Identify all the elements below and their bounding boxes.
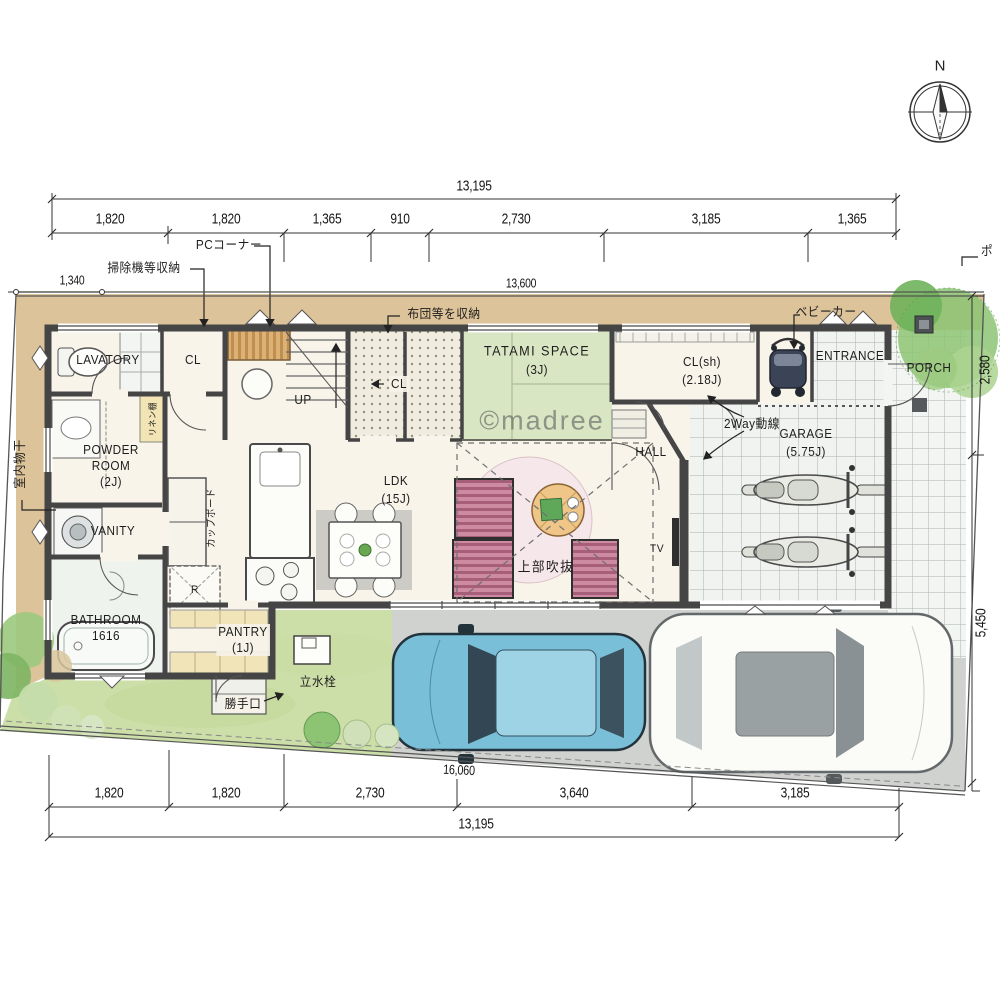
- room-label-hall: HALL: [635, 444, 666, 460]
- step-bench: [612, 410, 646, 438]
- room-label-garage: GARAGE: [779, 426, 832, 442]
- room-label-bathroom: BATHROOM 1616: [71, 612, 142, 644]
- room-label-vanity: VANITY: [91, 523, 135, 539]
- dim-right-upper: 2,580: [977, 356, 994, 385]
- dim-bottom-diagonal: 16,060: [443, 762, 475, 778]
- dim-bottom-seg: 3,640: [560, 785, 589, 802]
- callout-tap: 立水栓: [300, 674, 337, 690]
- compass-north-label: N: [935, 58, 946, 75]
- table-plant: [359, 544, 371, 556]
- floor-plan-canvas: N ©madree LAVATORY CL UP CL TATAMI SPACE…: [0, 0, 1000, 1000]
- tv-icon: [672, 518, 679, 566]
- blue-car-icon: [393, 624, 645, 764]
- sofa: [453, 540, 513, 598]
- white-car-icon: [650, 602, 952, 784]
- dim-right-lower: 5,450: [973, 609, 990, 638]
- room-label-ldk: LDK: [384, 473, 408, 489]
- room-label-entrance: ENTRANCE: [816, 348, 884, 364]
- callout-futon-storage: 布団等を収納: [407, 306, 480, 322]
- callout-back-door: 勝手口: [223, 696, 263, 712]
- stool-icon: [242, 369, 272, 399]
- room-size-garage: (5.75J): [786, 444, 826, 460]
- watermark: ©madree: [479, 406, 604, 437]
- room-label-lavatory: LAVATORY: [76, 352, 139, 368]
- dim-left-offset: 1,340: [60, 273, 85, 288]
- callout-two-way: 2Way動線: [724, 416, 780, 432]
- callout-vacuum-storage: 掃除機等収納: [107, 260, 180, 276]
- callout-pc-corner: PCコーナー: [196, 237, 262, 253]
- dim-top-seg: 1,365: [838, 211, 867, 228]
- room-label-pantry: PANTRY (1J): [216, 624, 269, 656]
- dim-bottom-seg: 1,820: [212, 785, 241, 802]
- entrance-tiles: [812, 328, 888, 404]
- fridge-label: R: [191, 583, 199, 597]
- room-label-tatami: TATAMI SPACE: [484, 342, 590, 359]
- kitchen-sink: [260, 452, 300, 486]
- stairs-up-label: UP: [294, 392, 311, 408]
- room-size-shoe-closet: (2.18J): [682, 372, 722, 388]
- compass-icon: [908, 82, 972, 142]
- dim-top-seg: 2,730: [502, 211, 531, 228]
- cooktop-counter: [246, 558, 314, 605]
- dim-top-seg: 1,365: [313, 211, 342, 228]
- callout-post: ポ: [981, 243, 993, 259]
- sofa-ottoman: [572, 540, 618, 598]
- callout-void-above: 上部吹抜: [518, 558, 574, 575]
- dim-bottom-total: 13,195: [458, 816, 493, 833]
- dim-bottom-seg: 1,820: [95, 785, 124, 802]
- dim-bottom-seg: 3,185: [781, 785, 810, 802]
- dim-top-total: 13,195: [456, 178, 491, 195]
- dim-top-seg: 1,820: [212, 211, 241, 228]
- tv-label: TV: [650, 542, 664, 556]
- callout-linen-shelf: リネン棚: [148, 402, 159, 436]
- dim-top-seg: 3,185: [692, 211, 721, 228]
- callout-cupboard: カップボード: [207, 488, 220, 548]
- room-label-shoe-closet: CL(sh): [683, 354, 721, 370]
- sofa: [455, 479, 513, 538]
- room-label-futon-closet: CL: [389, 376, 409, 392]
- callout-indoor-laundry: 室内物干: [12, 439, 28, 488]
- room-size-ldk: (15J): [381, 491, 410, 507]
- dim-bottom-seg: 2,730: [356, 785, 385, 802]
- dim-top-seg: 910: [390, 211, 409, 228]
- powder-basin: [61, 417, 91, 439]
- pc-desk: [228, 330, 290, 360]
- room-label-powder-room: POWDER ROOM (2J): [83, 442, 139, 490]
- callout-stroller: ベビーカー: [795, 304, 856, 320]
- room-label-closet: CL: [185, 352, 201, 368]
- room-label-porch: PORCH: [907, 360, 952, 376]
- dim-site-width: 13,600: [506, 276, 536, 291]
- water-tap: [294, 636, 330, 664]
- room-size-tatami: (3J): [526, 362, 548, 378]
- dim-top-seg: 1,820: [96, 211, 125, 228]
- floor-plan-graphics: [0, 0, 1000, 1000]
- floor-cushion: [540, 498, 562, 520]
